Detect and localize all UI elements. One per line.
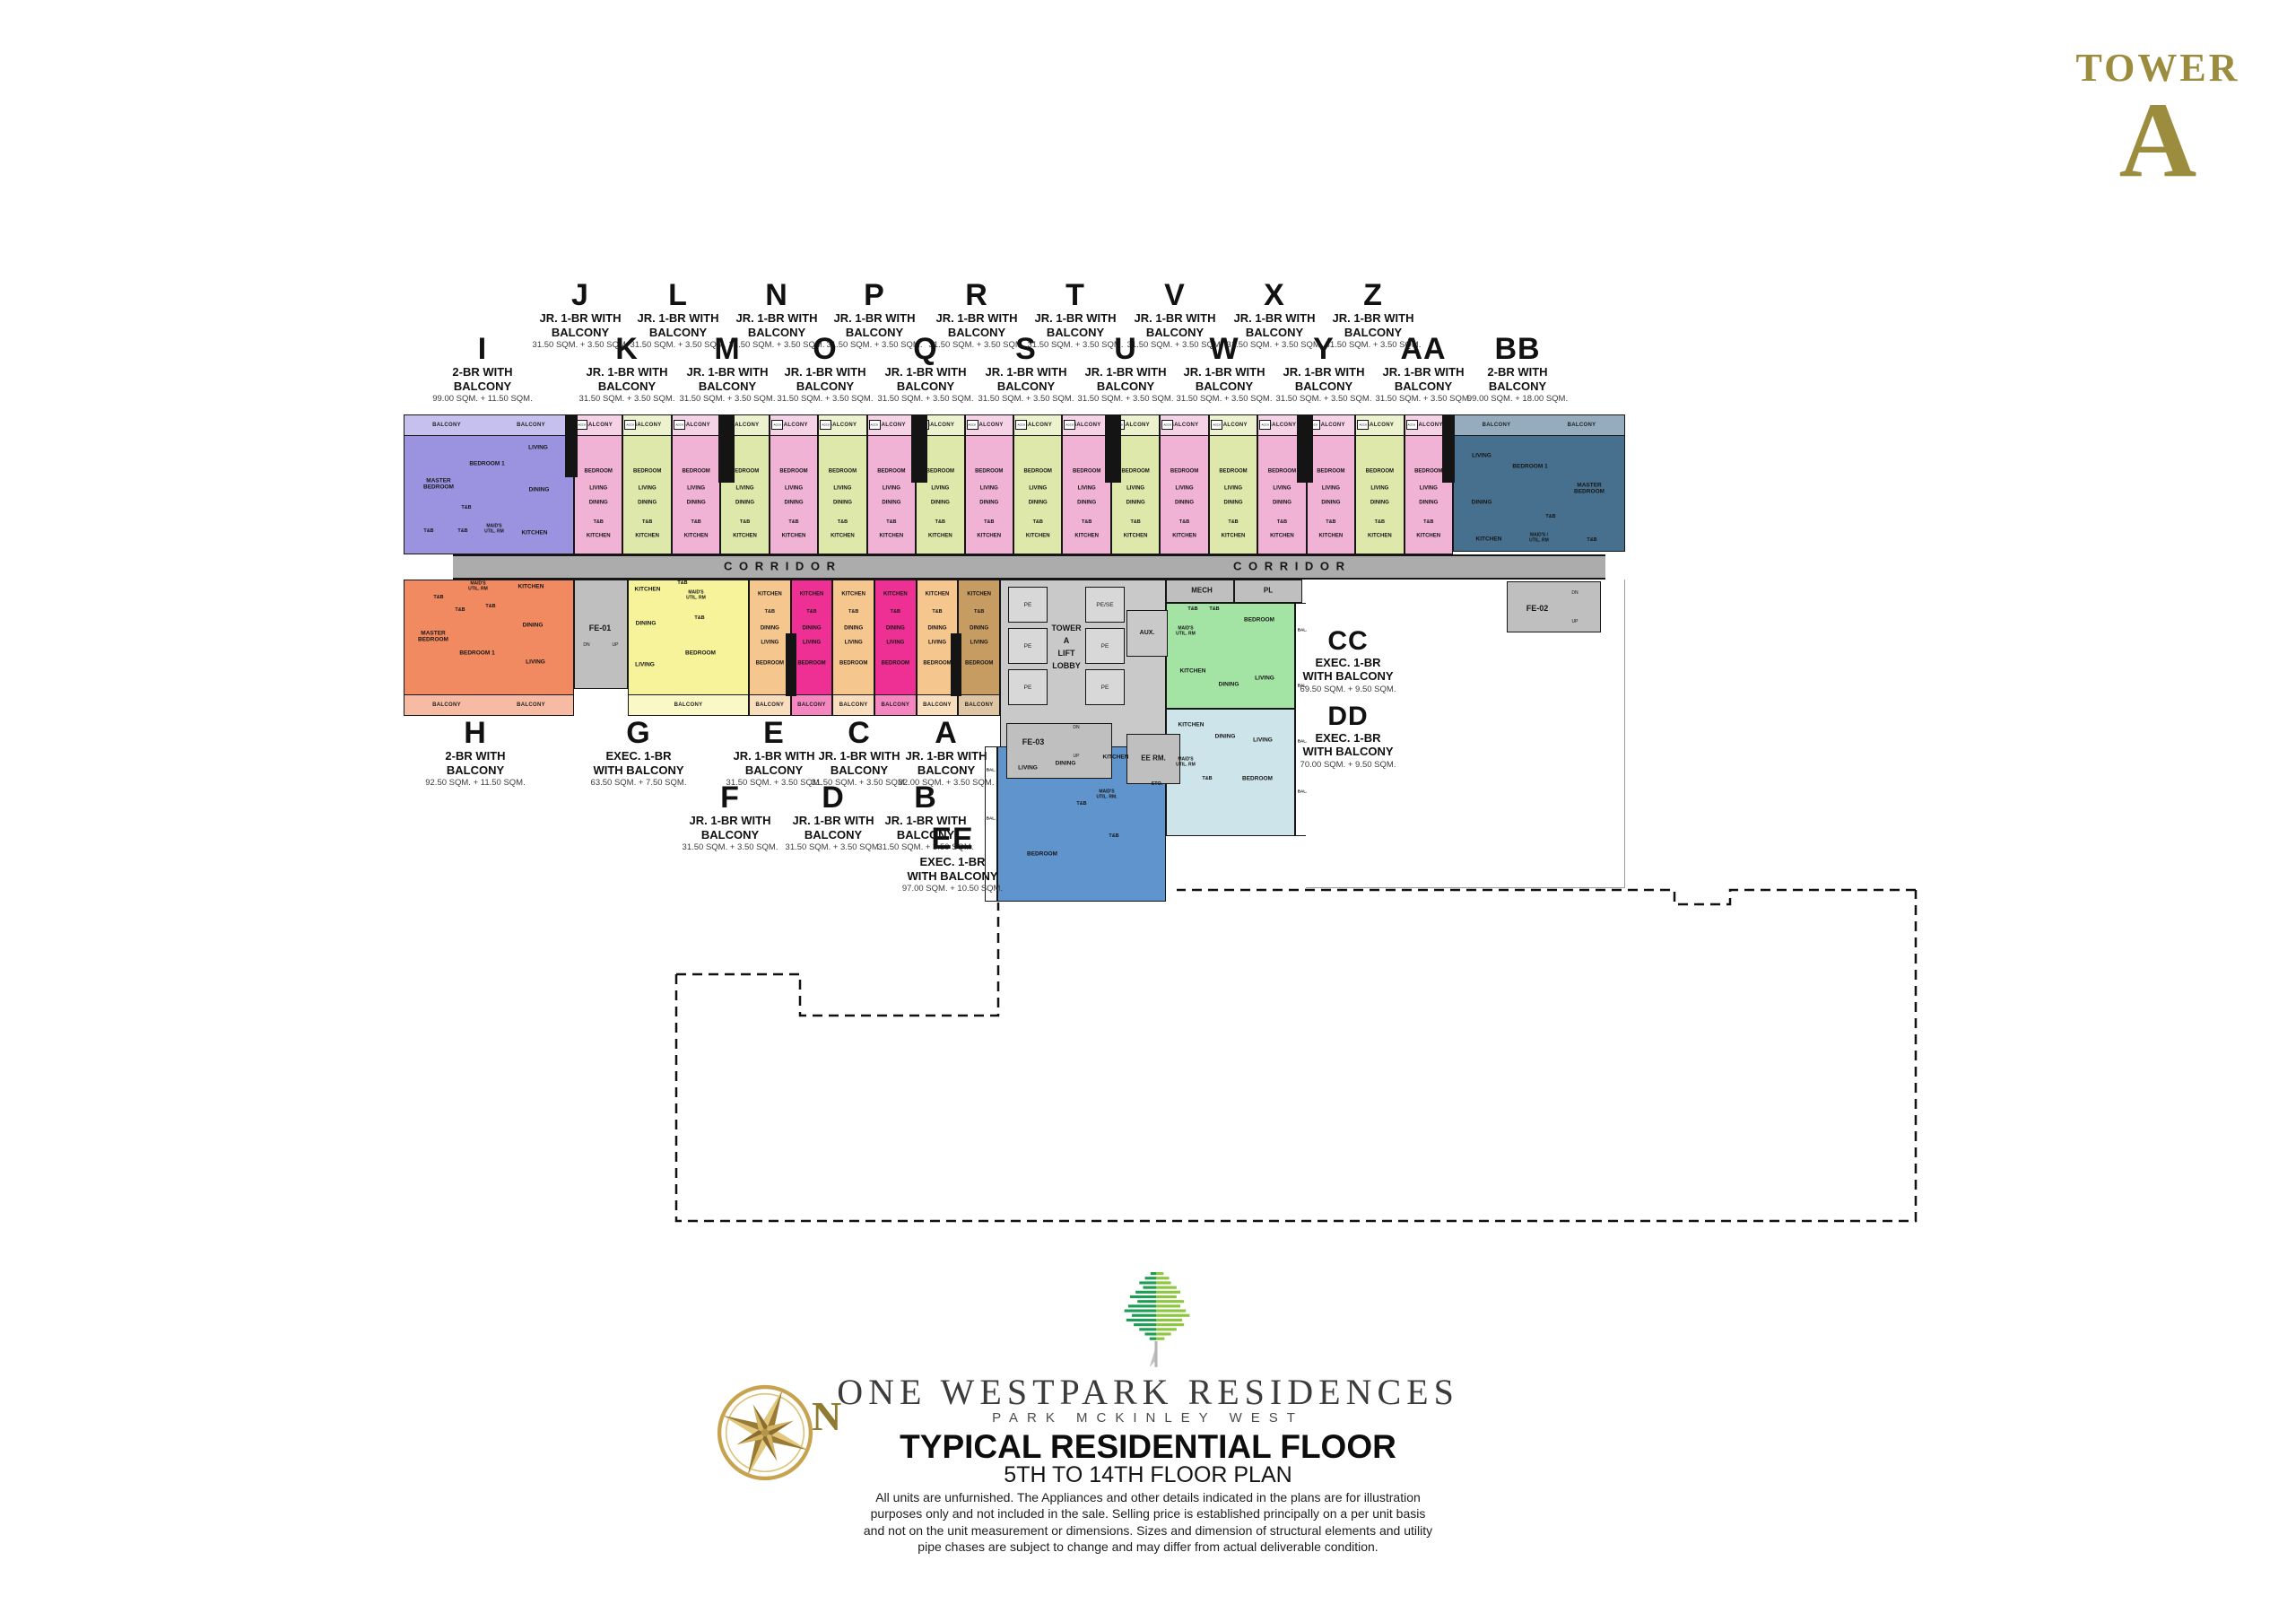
unit-type-line: BALCONY xyxy=(865,763,1027,778)
plan-room-label: T&B xyxy=(974,609,984,615)
balcony-strip-C: BALCONY xyxy=(874,694,917,716)
plan-room-label: DINING xyxy=(833,501,852,507)
wall-divider xyxy=(565,414,578,477)
unit-type-line: BALCONY xyxy=(395,763,556,778)
plan-room-label: T&B xyxy=(433,595,443,600)
plan-room-label: DINING xyxy=(1175,501,1194,507)
balcony-label: BALCONY xyxy=(584,423,613,428)
plan-room-label: BEDROOM xyxy=(1073,468,1100,475)
plan-room-label: T&B xyxy=(1326,519,1335,525)
unit-letter: H xyxy=(395,718,556,749)
plan-room-label: STO. xyxy=(1152,781,1163,787)
plan-room-label: LIVING xyxy=(1370,486,1388,493)
plan-room-label: LIVING xyxy=(1176,486,1194,493)
plan-room-label: BEDROOM xyxy=(975,468,1003,475)
plan-room-label: BEDROOM xyxy=(1242,775,1273,781)
plan-room-label: DINING xyxy=(1056,760,1076,766)
balcony-label: BALCONY xyxy=(923,702,952,708)
plan-room-label: KITCHEN xyxy=(635,586,661,592)
unit-label-CC: CCEXEC. 1-BRWITH BALCONY69.50 SQM. + 9.5… xyxy=(1267,628,1429,694)
plan-room-label: DINING xyxy=(1419,501,1438,507)
stair-FE-01 xyxy=(574,580,628,689)
plan-room-label: KITCHEN xyxy=(831,534,855,540)
plan-room-label: C O R R I D O R xyxy=(724,561,837,574)
corridor xyxy=(453,554,1605,580)
elevator-PE: PE xyxy=(1008,587,1048,623)
plan-room-label: LIVING xyxy=(833,486,851,493)
plan-room-label: DINING xyxy=(1219,681,1239,687)
plan-room-label: KITCHEN xyxy=(841,591,865,597)
plan-room-label: BEDROOM xyxy=(882,660,909,667)
plan-room-label: LIVING xyxy=(886,640,904,646)
accu-box: ACCU xyxy=(1357,420,1369,430)
plan-room-label: T&B xyxy=(932,609,942,615)
plan-room-label: DINING xyxy=(979,501,998,507)
plan-room-label: T&B xyxy=(935,519,945,525)
balcony-strip-B: BALCONY xyxy=(917,694,959,716)
balcony-label: BALCONY xyxy=(1023,423,1052,428)
plan-room-label: BEDROOM 1 xyxy=(1512,463,1547,469)
logo-tree-icon xyxy=(1111,1272,1201,1371)
balcony-strip-F: BALCONY xyxy=(749,694,791,716)
accu-label: ACCU xyxy=(1408,423,1416,426)
unit-letter: I xyxy=(402,334,563,365)
plan-room-label: DINING xyxy=(636,620,657,626)
plan-room-label: KITCHEN xyxy=(880,534,904,540)
unit-type-line: JR. 1-BR WITH xyxy=(865,749,1027,763)
plan-room-label: LIVING xyxy=(635,661,655,667)
plan-room-label: T&B xyxy=(1130,519,1140,525)
unit-area: 99.00 SQM. + 11.50 SQM. xyxy=(402,394,563,404)
plan-room-label: LIVING xyxy=(970,640,988,646)
plan-room-label: KITCHEN xyxy=(1319,534,1344,540)
plan-room-label: MAID'S UTIL. RM xyxy=(484,524,504,534)
balcony-label: BALCONY xyxy=(779,423,808,428)
plan-room-label: BEDROOM xyxy=(1024,468,1052,475)
balcony-label: BALCONY xyxy=(1414,423,1443,428)
plan-room-label: T&B xyxy=(691,519,700,525)
plan-room-label: KITCHEN xyxy=(1074,534,1099,540)
floor-title: TYPICAL RESIDENTIAL FLOOR xyxy=(900,1428,1396,1466)
brand-name: ONE WESTPARK RESIDENCES xyxy=(837,1371,1459,1413)
wall-divider xyxy=(1442,414,1455,483)
plan-room-label: MASTER BEDROOM xyxy=(418,631,448,644)
plan-room-label: T&B xyxy=(1375,519,1385,525)
plan-room-label: T&B xyxy=(891,609,900,615)
plan-room-label: T&B xyxy=(788,519,798,525)
plan-room-label: KITCHEN xyxy=(1180,667,1206,674)
plan-room-label: KITCHEN xyxy=(684,534,709,540)
unit-label-I: I2-BR WITHBALCONY99.00 SQM. + 11.50 SQM. xyxy=(402,334,563,404)
unit-type-line: WITH BALCONY xyxy=(872,869,1033,884)
plan-room-label: T&B xyxy=(642,519,652,525)
plan-room-label: BEDROOM xyxy=(1414,468,1442,475)
accu-box: ACCU xyxy=(674,420,685,430)
plan-room-label: T&B xyxy=(765,609,775,615)
unit-letter: A xyxy=(865,718,1027,749)
plan-room-label: KITCHEN xyxy=(1222,534,1246,540)
compass-icon xyxy=(707,1374,823,1491)
plan-room-label: MECH xyxy=(1191,588,1213,596)
balcony-strip: BALCONYBALCONY xyxy=(1453,414,1625,436)
accu-label: ACCU xyxy=(1261,423,1269,426)
unit-type-line: EXEC. 1-BR xyxy=(1267,731,1429,746)
balcony-strip: BALCONY xyxy=(628,694,749,716)
plan-room-label: LIVING xyxy=(931,486,949,493)
tower-badge: TOWER A xyxy=(2068,45,2248,189)
plan-room-label: BEDROOM xyxy=(779,468,807,475)
plan-room-label: KITCHEN xyxy=(800,591,824,597)
accu-label: ACCU xyxy=(1017,423,1025,426)
plan-room-label: LIVING xyxy=(1322,486,1340,493)
elevator-PE: PE xyxy=(1008,669,1048,705)
wall-divider xyxy=(718,414,735,483)
plan-room-label: KITCHEN xyxy=(522,529,548,536)
plan-room-label: LIVING xyxy=(1472,452,1492,458)
accu-label: ACCU xyxy=(773,423,781,426)
plan-room-label: T&B xyxy=(1082,519,1091,525)
balcony-label: BALCONY xyxy=(674,702,703,708)
plan-room-label: LIVING xyxy=(845,640,863,646)
plan-room-label: EE RM. xyxy=(1141,755,1166,763)
unit-letter: B xyxy=(845,782,1006,814)
plan-room-label: T&B xyxy=(694,615,704,621)
balcony-strip: BALCONYBALCONY xyxy=(404,694,574,716)
plan-room-label: T&B xyxy=(806,609,816,615)
balcony-label: BALCONY xyxy=(731,423,760,428)
balcony-label: BALCONY xyxy=(1568,423,1596,428)
plan-room-label: BEDROOM xyxy=(797,660,825,667)
plan-room-label: T&B xyxy=(1033,519,1043,525)
balcony-strip-D: BALCONY xyxy=(832,694,874,716)
plan-room-label: MAID'S UTIL. RM. xyxy=(1096,789,1117,799)
disclaimer-line: purposes only and not included in the sa… xyxy=(744,1505,1552,1522)
footprint-dashed-path xyxy=(676,890,1916,1221)
plan-room-label: DINING xyxy=(844,626,863,632)
plan-room-label: LIVING xyxy=(1029,486,1047,493)
disclaimer-line: and not on the unit measurement or dimen… xyxy=(744,1522,1552,1539)
plan-room-label: C O R R I D O R xyxy=(1233,561,1346,574)
plan-room-label: LIVING xyxy=(1273,486,1291,493)
unit-type-line: 2-BR WITH xyxy=(402,365,563,379)
plan-room-label: AUX. xyxy=(1140,630,1155,637)
unit-label-EE: EEEXEC. 1-BRWITH BALCONY97.00 SQM. + 10.… xyxy=(872,824,1033,894)
plan-room-label: DINING xyxy=(1370,501,1389,507)
plan-room-label: DINING xyxy=(1029,501,1048,507)
accu-box: ACCU xyxy=(771,420,783,430)
plan-room-label: T&B xyxy=(457,528,467,534)
accu-box: ACCU xyxy=(869,420,881,430)
floor-plan-page: TOWER A BALCONYACCUBEDROOMLIVINGDININGT&… xyxy=(0,0,2296,1622)
plan-room-label: BEDROOM xyxy=(839,660,867,667)
plan-room-label: KITCHEN xyxy=(926,591,950,597)
unit-type-line: 2-BR WITH xyxy=(1437,365,1598,379)
plan-room-label: BEDROOM xyxy=(1366,468,1394,475)
balcony-label: BALCONY xyxy=(1073,423,1101,428)
plan-room-label: T&B xyxy=(461,505,471,510)
balcony-label: BALCONY xyxy=(965,702,994,708)
plan-room-label: T&B xyxy=(677,580,687,586)
plan-room-label: BEDROOM xyxy=(1317,468,1344,475)
plan-room-label: BEDROOM xyxy=(682,468,709,475)
plan-room-label: T&B xyxy=(1179,519,1189,525)
plan-room-label: DINING xyxy=(1273,501,1291,507)
stair-FE-02 xyxy=(1507,581,1601,632)
elevator-PE: PE xyxy=(1085,669,1125,705)
plan-room-label: PL xyxy=(1264,588,1273,596)
plan-room-label: LIVING xyxy=(1420,486,1438,493)
unit-letter: Z xyxy=(1292,280,1454,311)
plan-room-label: LIVING xyxy=(1126,486,1144,493)
brand-location: PARK MCKINLEY WEST xyxy=(992,1410,1304,1426)
balcony-label: BALCONY xyxy=(1219,423,1248,428)
plan-room-label: TOWER xyxy=(1051,624,1081,632)
plan-room-label: DINING xyxy=(761,626,779,632)
plan-room-label: DINING xyxy=(1077,501,1096,507)
plan-room-label: DINING xyxy=(803,626,822,632)
plan-room-label: MAID'S UTIL. RM xyxy=(468,581,488,591)
plan-room-label: T&B xyxy=(485,604,495,609)
plan-room-label: DINING xyxy=(1215,733,1236,739)
unit-type-line: WITH BALCONY xyxy=(1267,745,1429,759)
plan-room-label: BEDROOM xyxy=(923,660,951,667)
plan-room-label: DINING xyxy=(1126,501,1145,507)
plan-room-label: BEDROOM xyxy=(829,468,857,475)
accu-label: ACCU xyxy=(675,423,683,426)
plan-room-label: LIFT xyxy=(1058,649,1075,658)
plan-room-label: KITCHEN xyxy=(733,534,757,540)
plan-room-label: T&B xyxy=(1587,537,1596,543)
plan-room-label: DINING xyxy=(886,626,905,632)
balcony-label: BALCONY xyxy=(517,423,545,428)
plan-room-label: DINING xyxy=(928,626,947,632)
balcony-label: BALCONY xyxy=(881,702,909,708)
plan-room-label: LIVING xyxy=(526,658,545,665)
plan-room-label: KITCHEN xyxy=(883,591,908,597)
unit-area: 99.00 SQM. + 18.00 SQM. xyxy=(1437,394,1598,404)
balcony-label: BALCONY xyxy=(797,702,826,708)
plan-room-label: KITCHEN xyxy=(967,591,991,597)
plan-room-label: DN xyxy=(1073,726,1079,731)
unit-type-line: WITH BALCONY xyxy=(1267,669,1429,684)
balcony-label: BALCONY xyxy=(1121,423,1150,428)
plan-room-label: LIVING xyxy=(980,486,998,493)
plan-room-label: KITCHEN xyxy=(1026,534,1050,540)
balcony-label: BALCONY xyxy=(432,702,461,708)
plan-room-label: MAID'S UTIL. RM xyxy=(686,590,706,600)
plan-room-label: KITCHEN xyxy=(518,583,544,589)
balcony-strip: BALCONYBALCONY xyxy=(404,414,574,436)
unit-type-line: 2-BR WITH xyxy=(395,749,556,763)
footprint-dashed-path xyxy=(676,903,998,1016)
plan-room-label: MASTER BEDROOM xyxy=(1574,483,1605,496)
balcony-label: BALCONY xyxy=(1317,423,1345,428)
plan-room-label: KITCHEN xyxy=(1172,534,1196,540)
plan-room-label: BEDROOM xyxy=(633,468,661,475)
plan-room-label: KITCHEN xyxy=(587,534,611,540)
elevator-PE-SE: PE/SE xyxy=(1085,587,1125,623)
accu-label: ACCU xyxy=(871,423,879,426)
unit-type-line: BALCONY xyxy=(1437,379,1598,394)
plan-room-label: BEDROOM xyxy=(1219,468,1247,475)
plan-room-label: BEDROOM xyxy=(685,650,716,656)
plan-room-label: BEDROOM xyxy=(1121,468,1149,475)
plan-room-label: MAID'S / UTIL. RM xyxy=(1529,533,1549,543)
unit-area: 70.00 SQM. + 9.50 SQM. xyxy=(1267,760,1429,770)
unit-letter: BB xyxy=(1437,334,1598,365)
plan-room-label: LIVING xyxy=(785,486,803,493)
accu-box: ACCU xyxy=(1406,420,1418,430)
balcony-label: BALCONY xyxy=(1483,423,1511,428)
balcony-label: BALCONY xyxy=(633,423,662,428)
plan-room-label: BEDROOM 1 xyxy=(469,460,504,467)
plan-room-label: DINING xyxy=(1472,499,1492,505)
plan-room-label: BEDROOM xyxy=(1244,616,1274,623)
plan-room-label: UP xyxy=(613,643,619,649)
plan-room-label: LIVING xyxy=(1224,486,1242,493)
balcony-label: BALCONY xyxy=(829,423,857,428)
plan-room-label: BAL. xyxy=(1298,789,1308,793)
balcony-label: BALCONY xyxy=(1170,423,1199,428)
balcony-strip-A: BALCONY xyxy=(958,694,1000,716)
unit-type-line: EXEC. 1-BR xyxy=(872,855,1033,869)
plan-room-label: KITCHEN xyxy=(977,534,1001,540)
wall-divider xyxy=(786,633,796,696)
plan-room-label: UP xyxy=(1572,620,1578,625)
plan-room-label: KITCHEN xyxy=(928,534,952,540)
unit-label-BB: BB2-BR WITHBALCONY99.00 SQM. + 18.00 SQM… xyxy=(1437,334,1598,404)
plan-room-label: KITCHEN xyxy=(1476,536,1502,542)
plan-room-label: DN xyxy=(583,643,589,649)
plan-room-label: UP xyxy=(1074,754,1080,760)
accu-box: ACCU xyxy=(1211,420,1222,430)
accu-box: ACCU xyxy=(1259,420,1271,430)
unit-letter: DD xyxy=(1267,703,1429,731)
balcony-label: BALCONY xyxy=(926,423,954,428)
plan-room-label: T&B xyxy=(848,609,858,615)
accu-label: ACCU xyxy=(627,423,635,426)
balcony-label: BALCONY xyxy=(839,702,868,708)
plan-room-label: T&B xyxy=(1209,606,1219,612)
balcony-label: BALCONY xyxy=(432,423,461,428)
plan-room-label: DINING xyxy=(1321,501,1340,507)
plan-room-label: DINING xyxy=(931,501,950,507)
accu-box: ACCU xyxy=(1015,420,1027,430)
footprint-dashed-path xyxy=(1177,890,1916,904)
plan-room-label: T&B xyxy=(1423,519,1433,525)
plan-room-label: LIVING xyxy=(736,486,754,493)
plan-room-label: LIVING xyxy=(1078,486,1096,493)
accu-box: ACCU xyxy=(967,420,978,430)
plan-room-label: BEDROOM xyxy=(877,468,905,475)
plan-room-label: BEDROOM xyxy=(585,468,613,475)
plan-room-label: DINING xyxy=(1224,501,1243,507)
plan-room-label: LIVING xyxy=(687,486,705,493)
plan-room-label: LIVING xyxy=(928,640,946,646)
accu-label: ACCU xyxy=(1066,423,1074,426)
plan-room-label: T&B xyxy=(984,519,994,525)
accu-label: ACCU xyxy=(969,423,977,426)
wall-divider xyxy=(951,633,961,696)
balcony-label: BALCONY xyxy=(975,423,1004,428)
plan-room-label: BEDROOM xyxy=(965,660,993,667)
plan-room-label: T&B xyxy=(1202,776,1212,781)
floor-subtitle: 5TH TO 14TH FLOOR PLAN xyxy=(1004,1462,1291,1488)
unit-type-line: BALCONY xyxy=(402,379,563,394)
accu-box: ACCU xyxy=(1064,420,1075,430)
plan-room-label: T&B xyxy=(1187,606,1197,612)
plan-room-label: BEDROOM xyxy=(731,468,759,475)
plan-room-label: T&B xyxy=(1545,514,1555,519)
plan-room-label: LIVING xyxy=(639,486,657,493)
unit-label-H: H2-BR WITHBALCONY92.50 SQM. + 11.50 SQM. xyxy=(395,718,556,788)
plan-room-label: DN xyxy=(1571,591,1578,597)
balcony-label: BALCONY xyxy=(755,702,784,708)
disclaimer-line: pipe chases are subject to change and ma… xyxy=(744,1539,1552,1555)
plan-room-label: KITCHEN xyxy=(758,591,782,597)
plan-room-label: BEDROOM 1 xyxy=(459,650,494,656)
unit-label-A: AJR. 1-BR WITHBALCONY32.00 SQM. + 3.50 S… xyxy=(865,718,1027,788)
balcony-label: BALCONY xyxy=(877,423,906,428)
balcony-label: BALCONY xyxy=(1365,423,1394,428)
plan-room-label: DINING xyxy=(785,501,804,507)
wall-divider xyxy=(1105,414,1121,483)
balcony-strip-E: BALCONY xyxy=(791,694,833,716)
accu-label: ACCU xyxy=(1213,423,1221,426)
plan-room-label: LIVING xyxy=(803,640,821,646)
balcony-label: BALCONY xyxy=(682,423,710,428)
plan-room-label: KITCHEN xyxy=(1416,534,1440,540)
plan-room-label: A xyxy=(1064,636,1070,645)
corridor-gap xyxy=(400,553,453,581)
elevator-PE: PE xyxy=(1085,628,1125,664)
plan-room-label: BEDROOM xyxy=(756,660,784,667)
plan-room-label: BEDROOM xyxy=(1268,468,1296,475)
unit-type-line: JR. 1-BR WITH xyxy=(1292,311,1454,326)
unit-area: 92.50 SQM. + 11.50 SQM. xyxy=(395,778,556,788)
unit-letter: CC xyxy=(1267,628,1429,656)
plan-room-label: T&B xyxy=(455,607,465,613)
wall-divider xyxy=(1297,414,1313,483)
plan-room-label: LIVING xyxy=(883,486,900,493)
unit-letter: EE xyxy=(872,824,1033,855)
accu-label: ACCU xyxy=(822,423,830,426)
accu-label: ACCU xyxy=(1163,423,1171,426)
plan-room-label: FE-02 xyxy=(1526,604,1549,613)
plan-room-label: DINING xyxy=(529,486,550,493)
plan-room-label: DINING xyxy=(638,501,657,507)
plan-room-label: DINING xyxy=(523,622,544,628)
plan-room-label: LIVING xyxy=(761,640,778,646)
plan-room-label: DINING xyxy=(589,501,608,507)
accu-box: ACCU xyxy=(820,420,831,430)
disclaimer-line: All units are unfurnished. The Appliance… xyxy=(744,1489,1552,1505)
elevator-PE: PE xyxy=(1008,628,1048,664)
plan-room-label: BEDROOM xyxy=(1170,468,1198,475)
unit-label-DD: DDEXEC. 1-BRWITH BALCONY70.00 SQM. + 9.5… xyxy=(1267,703,1429,770)
plan-room-label: DINING xyxy=(882,501,900,507)
balcony-label: BALCONY xyxy=(1268,423,1297,428)
plan-room-label: T&B xyxy=(1277,519,1287,525)
plan-room-label: KITCHEN xyxy=(782,534,806,540)
plan-room-label: KITCHEN xyxy=(1178,721,1205,728)
balcony-label: BALCONY xyxy=(517,702,545,708)
plan-room-label: LOBBY xyxy=(1052,661,1081,670)
plan-room-label: KITCHEN xyxy=(1124,534,1148,540)
plan-room-label: KITCHEN xyxy=(1103,754,1129,760)
wall-divider xyxy=(911,414,927,483)
plan-room-label: T&B xyxy=(1228,519,1238,525)
